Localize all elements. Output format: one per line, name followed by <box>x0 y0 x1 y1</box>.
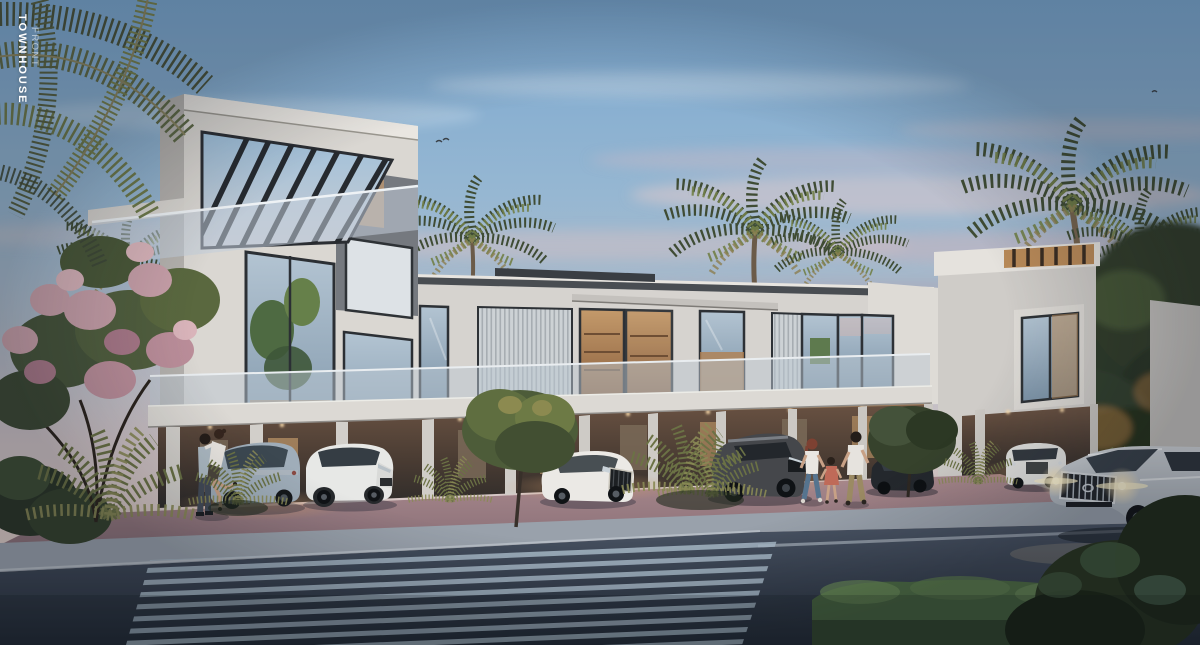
bottom-shade <box>0 595 1200 645</box>
watermark-subtitle: FRONT <box>29 27 40 67</box>
watermark: TOWNHOUSE FRONT <box>16 14 40 105</box>
vignette <box>0 0 1200 645</box>
watermark-title: TOWNHOUSE <box>16 14 28 105</box>
townhouse-exterior-render: TOWNHOUSE FRONT <box>0 0 1200 645</box>
